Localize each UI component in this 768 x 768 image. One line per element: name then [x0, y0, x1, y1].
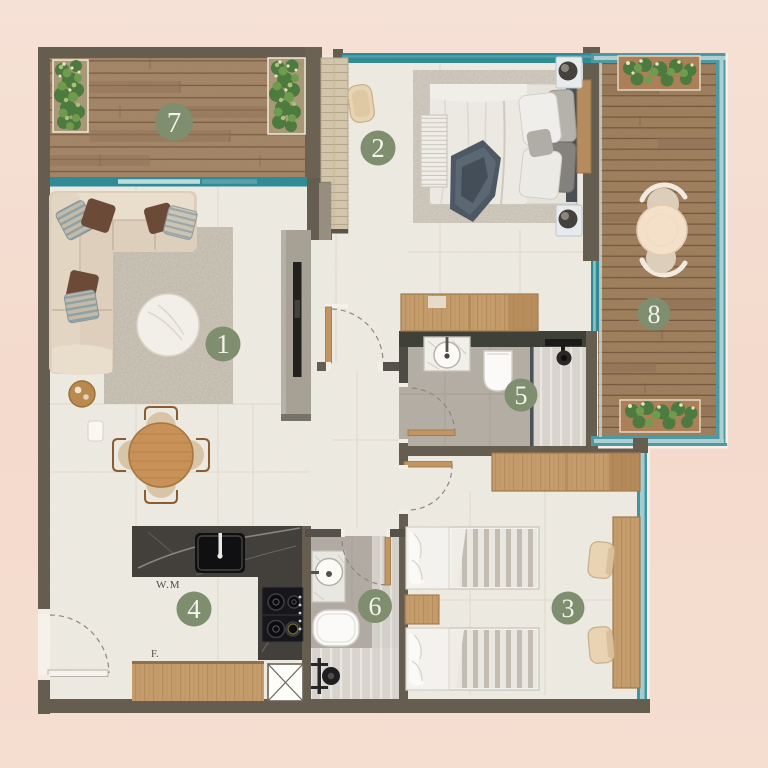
svg-text:7: 7 — [167, 107, 182, 139]
svg-text:5: 5 — [515, 381, 528, 410]
svg-text:W.M: W.M — [156, 579, 180, 591]
svg-text:1: 1 — [216, 329, 230, 359]
svg-text:6: 6 — [369, 592, 382, 621]
svg-text:8: 8 — [648, 300, 661, 329]
svg-text:2: 2 — [371, 133, 385, 163]
svg-text:3: 3 — [562, 594, 575, 623]
svg-text:4: 4 — [187, 594, 201, 624]
svg-text:F.: F. — [151, 649, 159, 660]
